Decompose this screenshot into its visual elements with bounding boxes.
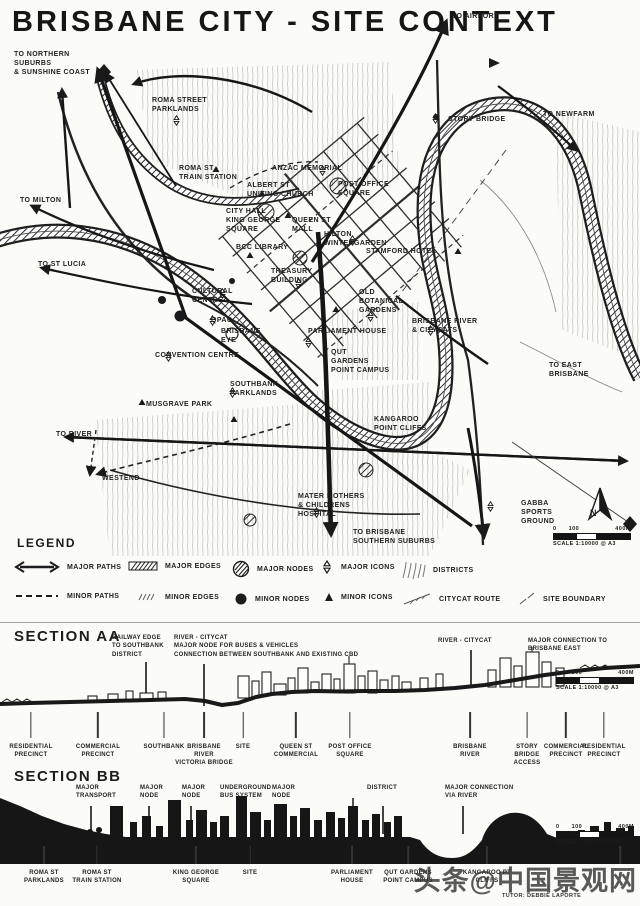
- map-label: TO EAST BRISBANE: [549, 361, 589, 379]
- map-label: BCC LIBRARY: [236, 243, 288, 252]
- map-label: ANZAC MEMORIAL: [272, 164, 342, 173]
- map-label: TO NEWFARM: [543, 110, 595, 119]
- axis-label: ROMA ST PARKLANDS: [24, 869, 64, 885]
- section-axis-item: SITE: [243, 846, 258, 877]
- legend-item-label: MAJOR ICONS: [341, 564, 395, 571]
- section-bb-scale-bar: 0100400MSCALE 1:10000 @ A3: [556, 824, 634, 845]
- legend-item-districts: DISTRICTS: [400, 560, 474, 580]
- axis-label: QUEEN ST COMMERCIAL: [274, 743, 318, 759]
- section-axis-item: ROMA ST TRAIN STATION: [72, 846, 121, 885]
- map-label: QUT GARDENS POINT CAMPUS: [331, 348, 389, 375]
- section-aa-title: SECTION AA: [14, 628, 121, 645]
- scale-number: 100: [572, 824, 583, 830]
- axis-label: PARLIAMENT HOUSE: [331, 869, 373, 885]
- section-axis-item: RESIDENTIAL PRECINCT: [9, 712, 52, 759]
- section-axis-item: RESIDENTIAL PRECINCT: [582, 712, 625, 759]
- scale-numbers: 0100400M: [556, 824, 634, 830]
- watermark: 头条@中国景观网: [414, 859, 637, 898]
- section-axis-item: KING GEORGE SQUARE: [173, 846, 219, 885]
- axis-label: KING GEORGE SQUARE: [173, 869, 219, 885]
- section-axis-item: PARLIAMENT HOUSE: [331, 846, 373, 885]
- axis-label: RESIDENTIAL PRECINCT: [9, 743, 52, 759]
- scale-number: 400M: [618, 824, 634, 830]
- map-label: OLD BOTANICAL GARDENS: [359, 288, 403, 315]
- map-label: TREASURY BUILDING: [271, 267, 312, 285]
- tick-mark: [526, 712, 528, 738]
- map-label: GABBA SPORTS GROUND: [521, 499, 555, 526]
- axis-label: SITE: [243, 869, 258, 877]
- axis-label: POST OFFICE SQUARE: [328, 743, 371, 759]
- map-label: BRISBANE EYE: [221, 327, 261, 345]
- legend-item-minor-edges: MINOR EDGES: [136, 592, 219, 602]
- path-up-left: [62, 90, 70, 208]
- section-axis-item: BRISBANE RIVER VICTORIA BRIDGE: [175, 712, 233, 767]
- tick-mark: [96, 846, 98, 864]
- scale-bar-strip: [556, 831, 634, 838]
- legend-item-label: MINOR NODES: [255, 596, 310, 603]
- star-icon: [320, 560, 334, 574]
- scale-bar-segment: [596, 534, 630, 539]
- map-label: TO MILTON: [20, 196, 61, 205]
- section-axis-item: BRISBANE RIVER: [453, 712, 487, 759]
- map-label: WESTEND: [102, 474, 140, 483]
- map-label: MATER MOTHERS & CHILDRENS HOSPITAL: [298, 492, 365, 519]
- scale-caption: SCALE 1:10000 @ A3: [556, 839, 634, 845]
- tick-mark: [30, 712, 32, 738]
- legend-item-citycat-route: CITYCAT ROUTE: [402, 592, 500, 606]
- section-axis-item: STORY BRIDGE ACCESS: [514, 712, 541, 767]
- legend-row-major: MAJOR PATHSMAJOR EDGESMAJOR NODESMAJOR I…: [0, 560, 640, 584]
- legend-item-label: MINOR EDGES: [165, 594, 219, 601]
- section-axis-item: SITE: [236, 712, 251, 751]
- scale-number: 0: [556, 670, 560, 676]
- legend-item-label: SITE BOUNDARY: [543, 596, 606, 603]
- scale-numbers: 0100400M: [553, 526, 631, 532]
- page-title: BRISBANE CITY - SITE CONTEXT: [12, 6, 558, 39]
- scale-bar-segment: [580, 832, 599, 837]
- dash-diagonal-icon: [518, 592, 536, 606]
- map-label: ROMA STREET PARKLANDS: [152, 96, 207, 114]
- flag-marker: [489, 58, 500, 68]
- tick-mark: [203, 712, 205, 738]
- tick-mark: [603, 712, 605, 738]
- scale-bar-strip: [553, 533, 631, 540]
- scale-bar-segment: [580, 678, 599, 683]
- map-label: CULTURAL CENTRE: [192, 287, 233, 305]
- map-label: SOUTHBANK PARKLANDS: [230, 380, 278, 398]
- legend-title: LEGEND: [17, 536, 76, 550]
- map-drawing: [0, 0, 640, 560]
- scale-number: 100: [569, 526, 580, 532]
- map-label: TO BRISBANE SOUTHERN SUBURBS: [353, 528, 435, 546]
- scale-number: 100: [572, 670, 583, 676]
- scale-bar-strip: [556, 677, 634, 684]
- tick-mark: [249, 846, 251, 864]
- tick-mark: [195, 846, 197, 864]
- axis-label: STORY BRIDGE ACCESS: [514, 743, 541, 767]
- axis-label: BRISBANE RIVER VICTORIA BRIDGE: [175, 743, 233, 767]
- site-boundary: [396, 150, 506, 300]
- compass-north-indicator: N: [576, 486, 624, 526]
- legend-item-major-nodes: MAJOR NODES: [232, 560, 314, 578]
- scale-caption: SCALE 1:10000 @ A3: [553, 541, 631, 547]
- hatched-bar-icon: [128, 560, 158, 572]
- map-label: POST OFFICE SQUARE: [338, 180, 389, 198]
- hatched-circle-icon: [232, 560, 250, 578]
- map-label: TO ST LUCIA: [38, 260, 86, 269]
- scale-number: 0: [556, 824, 560, 830]
- axis-label: ROMA ST TRAIN STATION: [72, 869, 121, 885]
- scale-bar-segment: [599, 832, 633, 837]
- scale-bar-segment: [599, 678, 633, 683]
- legend-item-major-icons: MAJOR ICONS: [320, 560, 395, 574]
- map-label: CONVENTION CENTRE: [155, 351, 239, 360]
- tick-mark: [295, 712, 297, 738]
- tick-mark: [565, 712, 567, 738]
- tick-mark: [97, 712, 99, 738]
- map-label: TO NORTHERN SUBURBS & SUNSHINE COAST: [14, 50, 90, 77]
- small-triangle-icon: [324, 592, 334, 602]
- legend-item-major-edges: MAJOR EDGES: [128, 560, 221, 572]
- section-divider: [0, 622, 640, 623]
- tick-mark: [163, 712, 165, 738]
- map-label: HILTON WINTERGARDEN: [324, 230, 387, 248]
- axis-label: RESIDENTIAL PRECINCT: [582, 743, 625, 759]
- legend-item-minor-nodes: MINOR NODES: [234, 592, 310, 606]
- compass-n-label: N: [590, 508, 597, 518]
- section-aa-skyline: [0, 646, 640, 714]
- district-hatch-icon: [400, 560, 426, 580]
- small-hatch-icon: [136, 592, 158, 602]
- section-bb-title: SECTION BB: [14, 768, 122, 785]
- legend-item-label: MAJOR PATHS: [67, 564, 121, 571]
- dashed-line-icon: [14, 592, 60, 600]
- map-label: QPAC: [211, 316, 232, 325]
- section-axis-item: QUEEN ST COMMERCIAL: [274, 712, 318, 759]
- section-aa-scale-bar: 0100400MSCALE 1:10000 @ A3: [556, 670, 634, 691]
- section-annotation: RIVER - CITYCAT: [438, 637, 492, 645]
- legend-item-label: MAJOR NODES: [257, 566, 314, 573]
- filled-circle-icon: [234, 592, 248, 606]
- legend-item-major-paths: MAJOR PATHS: [14, 560, 121, 574]
- section-axis-item: COMMERCIAL PRECINCT: [76, 712, 120, 759]
- map-label: KANGAROO POINT CLIFFS: [374, 415, 427, 433]
- map-label: PARLIAMENT HOUSE: [308, 327, 387, 336]
- axis-label: SITE: [236, 743, 251, 751]
- tick-mark: [349, 712, 351, 738]
- section-axis-item: POST OFFICE SQUARE: [328, 712, 371, 759]
- tick-mark: [407, 846, 409, 864]
- legend-item-label: MINOR ICONS: [341, 594, 393, 601]
- scale-bar-segment: [554, 534, 577, 539]
- ticked-line-icon: [402, 592, 432, 606]
- scale-bar-segment: [577, 534, 596, 539]
- legend-item-label: CITYCAT ROUTE: [439, 596, 500, 603]
- map-label: CITY HALL KING GEORGE SQUARE: [226, 207, 281, 234]
- tick-mark: [43, 846, 45, 864]
- legend-item-minor-icons: MINOR ICONS: [324, 592, 393, 602]
- site-context-sheet: BRISBANE CITY - SITE CONTEXT TO NORTHERN…: [0, 0, 640, 906]
- legend-item-label: DISTRICTS: [433, 567, 474, 574]
- legend-item-label: MAJOR EDGES: [165, 563, 221, 570]
- section-axis-item: ROMA ST PARKLANDS: [24, 846, 64, 885]
- legend-row-minor: MINOR PATHSMINOR EDGESMINOR NODESMINOR I…: [0, 592, 640, 616]
- scale-caption: SCALE 1:10000 @ A3: [556, 685, 634, 691]
- compass-needle-icon: [576, 486, 624, 526]
- scale-number: 400M: [615, 526, 631, 532]
- tick-mark: [242, 712, 244, 738]
- map-label: TO AIRPORT: [452, 12, 499, 21]
- scale-numbers: 0100400M: [556, 670, 634, 676]
- tick-mark: [351, 846, 353, 864]
- tick-mark: [469, 712, 471, 738]
- legend-item-site-boundary: SITE BOUNDARY: [518, 592, 606, 606]
- scale-bar-segment: [557, 832, 580, 837]
- double-arrow-icon: [14, 560, 60, 574]
- scale-bar-segment: [557, 678, 580, 683]
- legend-item-minor-paths: MINOR PATHS: [14, 592, 119, 600]
- axis-label: BRISBANE RIVER: [453, 743, 487, 759]
- map-label: TO RIVER: [56, 430, 92, 439]
- scale-number: 0: [553, 526, 557, 532]
- axis-label: COMMERCIAL PRECINCT: [76, 743, 120, 759]
- section-aa-axis-labels: RESIDENTIAL PRECINCTCOMMERCIAL PRECINCTS…: [0, 712, 640, 772]
- map-scale-bar: 0100400MSCALE 1:10000 @ A3: [553, 526, 631, 547]
- legend-item-label: MINOR PATHS: [67, 593, 119, 600]
- scale-number: 400M: [618, 670, 634, 676]
- map-label: ROMA ST TRAIN STATION: [179, 164, 237, 182]
- map-label: STAMFORD HOTEL: [366, 247, 436, 256]
- map-label: STORY BRIDGE: [448, 115, 506, 124]
- map-label: ALBERT ST UNITING CHURCH: [247, 181, 314, 199]
- map-label: BRISBANE RIVER & CITYCATS: [412, 317, 478, 335]
- map-label: MUSGRAVE PARK: [146, 400, 212, 409]
